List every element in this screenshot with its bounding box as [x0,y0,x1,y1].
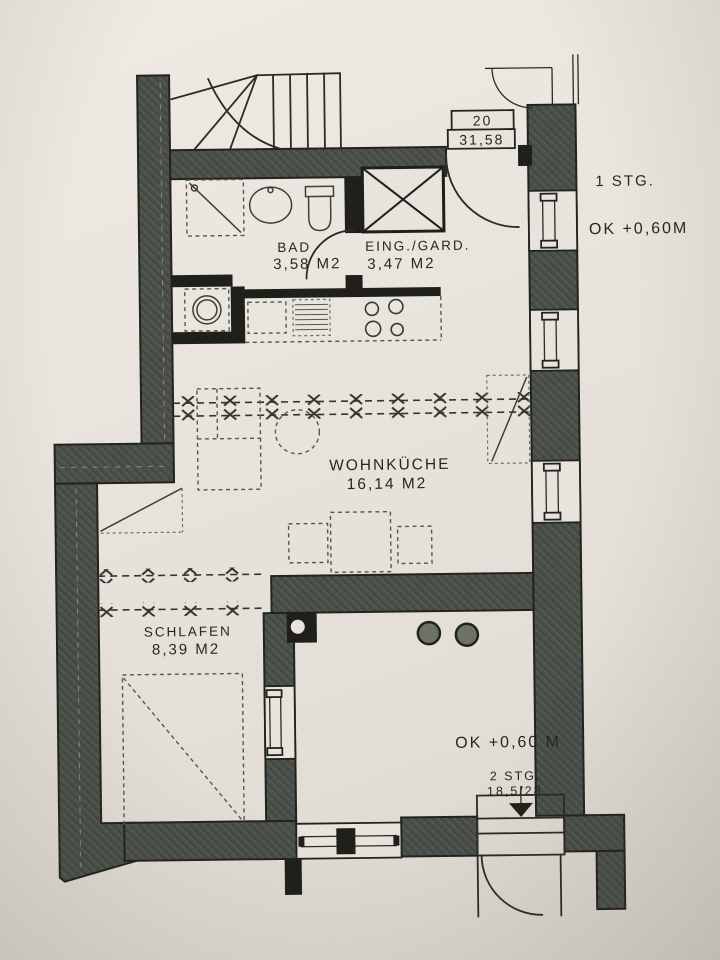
window-icon [528,190,577,251]
room-name-eing: EING./GARD. [365,238,470,254]
apartment-number: 20 [473,112,493,128]
winder-stairs-icon [171,73,341,150]
stairwell-door-arc [492,68,532,108]
washer-nook-top [171,275,232,288]
wall-left-step [55,443,174,483]
washer-nook-bottom [172,331,245,344]
columns [287,611,478,648]
floor-plan-photo: 20 31,58 1 STG. OK +0,60M BAD 3,58 M2 EI… [0,0,720,960]
duct-post-icon [287,613,317,643]
bathroom-fixtures [186,178,334,236]
annotation-level-upper: OK +0,60M [589,220,689,238]
wall-stair-right-lower [597,851,626,909]
room-area-bad: 3,58 M2 [273,255,341,273]
wardrobe-icon [362,167,444,232]
bed-icon [122,673,244,824]
wall-bath-right [344,177,362,233]
floor-plan: 20 31,58 1 STG. OK +0,60M BAD 3,58 M2 EI… [50,53,697,922]
annotation-level-lower: OK +0,60 M [455,734,561,752]
kitchen-sink-icon [248,302,286,333]
partitions [170,145,541,896]
stairwell-landing [485,54,579,108]
washbasin-icon [249,187,291,224]
room-area-schlafen: 8,39 M2 [152,641,220,659]
apartment-area: 31,58 [459,131,504,148]
window-icon [532,460,581,523]
window-icon [530,309,579,371]
shower-icon [186,179,244,236]
room-area-eing: 3,47 M2 [367,255,435,273]
column-icon [418,622,440,644]
room-name-bad: BAD [277,240,311,255]
annotation-stairs-down-count: 2 STG. [490,769,542,784]
kitchen-appliance-icon [293,299,330,335]
chair-icon [398,526,432,563]
slope-corner-left [100,488,183,533]
toilet-icon [305,186,334,230]
wall-bottom-mid [401,817,477,857]
room-name-wohnkueche: WOHNKÜCHE [329,455,451,474]
wall-left-top [137,75,173,443]
wall-bedroom-bottom [124,821,296,861]
entry-door-hinge-block [518,145,532,166]
column-icon [456,624,478,646]
bedroom-bottom-window-icon [296,823,401,859]
bedroom-side-window-icon [265,686,296,759]
room-area-wohnkueche: 16,14 M2 [347,475,428,493]
annotation-stairs-down-dim: 18,5/28 [487,784,543,799]
wall-living-bottom [271,573,533,613]
wall-stair-right [564,815,624,852]
room-name-schlafen: SCHLAFEN [144,624,232,640]
kitchen-counter-back [243,287,441,298]
stove-burners-icon [365,299,403,336]
wall-stub-below-bedroom [285,859,302,895]
chair-icon [289,523,328,562]
kitchen-counter [245,296,442,342]
annotation-stairs-up: 1 STG. [595,172,655,190]
washer-nook-right [231,286,246,332]
floor-plan-drawing: 20 31,58 1 STG. OK +0,60M BAD 3,58 M2 EI… [0,0,720,960]
bottom-door-arc [482,855,543,916]
dining-table-icon [330,512,391,573]
washing-machine-icon [185,289,230,332]
entry-door-arc [446,155,519,228]
